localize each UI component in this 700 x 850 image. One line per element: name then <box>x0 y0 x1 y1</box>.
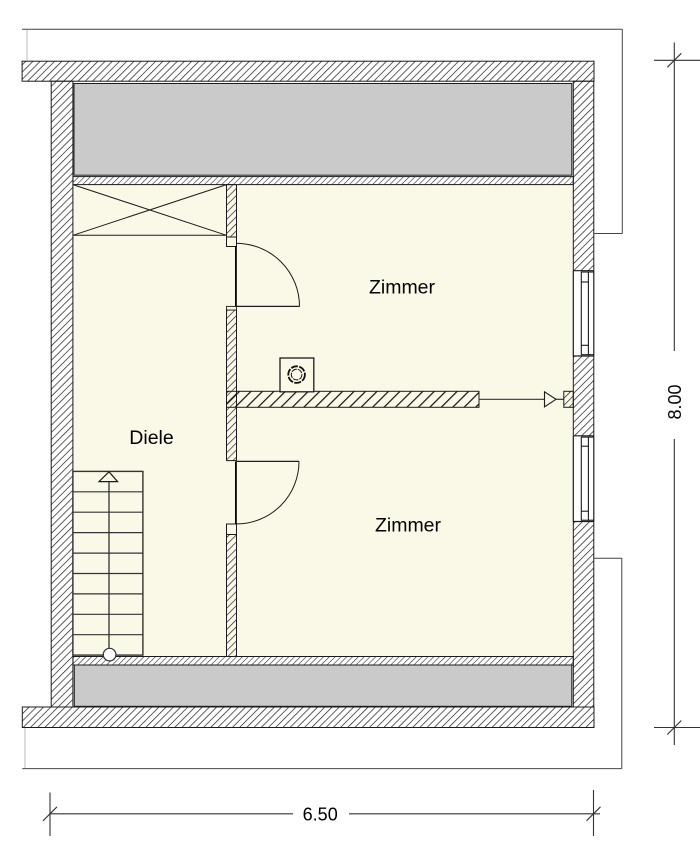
svg-text:Zimmer: Zimmer <box>369 277 436 299</box>
svg-text:Zimmer: Zimmer <box>375 515 442 537</box>
svg-text:6.50: 6.50 <box>303 805 338 825</box>
svg-text:Diele: Diele <box>129 427 173 449</box>
svg-text:8.00: 8.00 <box>665 384 685 419</box>
